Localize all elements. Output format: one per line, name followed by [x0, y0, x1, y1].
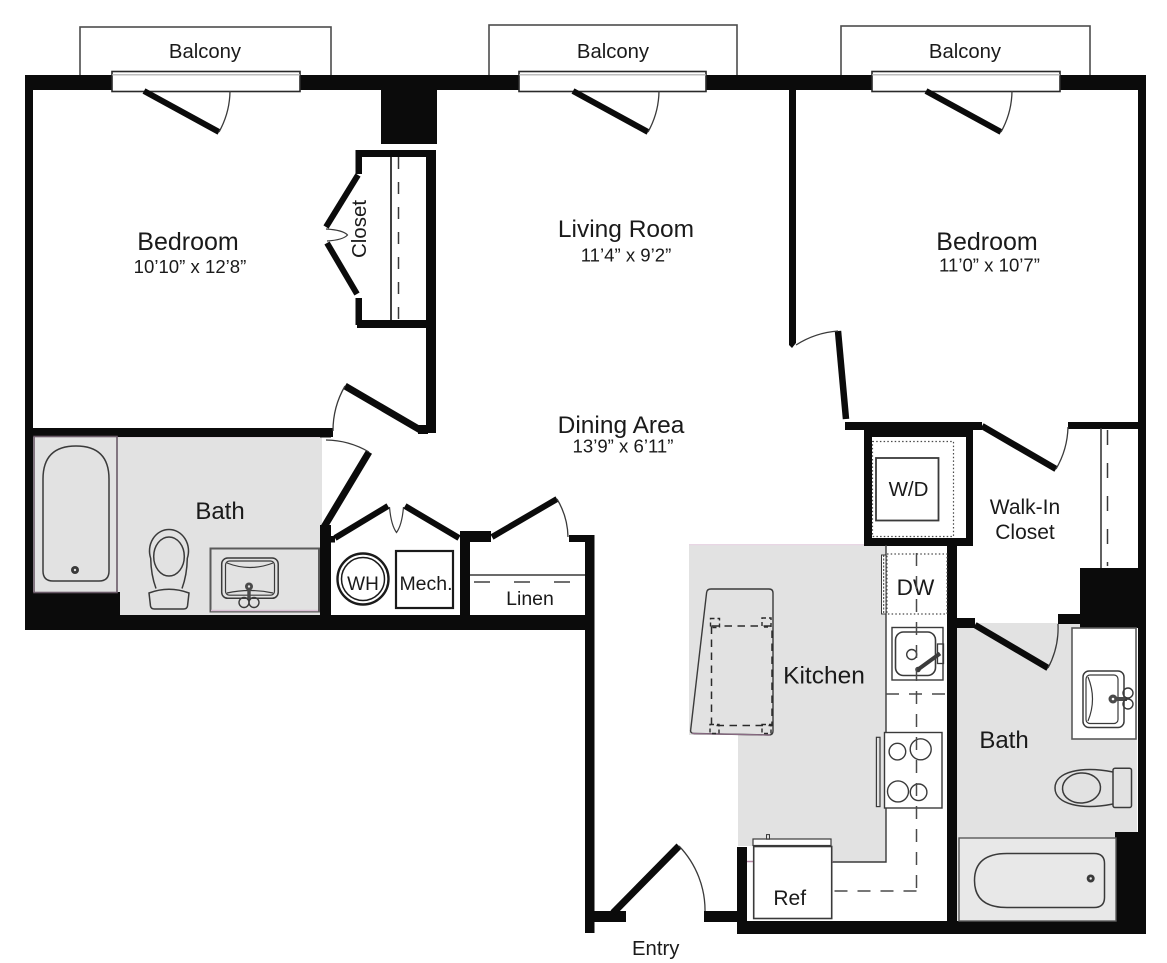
- svg-text:Balcony: Balcony: [929, 41, 1002, 63]
- svg-text:Kitchen: Kitchen: [783, 663, 865, 690]
- svg-text:Walk-In: Walk-In: [990, 496, 1060, 519]
- svg-text:Ref: Ref: [773, 887, 806, 910]
- svg-text:Closet: Closet: [995, 521, 1055, 544]
- svg-text:Closet: Closet: [348, 200, 371, 258]
- svg-text:Mech.: Mech.: [399, 573, 452, 595]
- svg-text:Bedroom: Bedroom: [137, 228, 238, 256]
- svg-text:11’0” x 10’7”: 11’0” x 10’7”: [939, 255, 1040, 276]
- svg-text:Linen: Linen: [506, 588, 554, 610]
- svg-text:Bedroom: Bedroom: [936, 228, 1037, 256]
- svg-text:Balcony: Balcony: [577, 41, 650, 63]
- svg-text:Living Room: Living Room: [558, 216, 694, 243]
- svg-text:11’4” x 9’2”: 11’4” x 9’2”: [581, 245, 672, 266]
- svg-text:10’10” x 12’8”: 10’10” x 12’8”: [134, 256, 247, 277]
- svg-text:Bath: Bath: [195, 498, 244, 525]
- svg-text:Entry: Entry: [632, 938, 680, 960]
- svg-text:Balcony: Balcony: [169, 41, 242, 63]
- svg-text:13’9” x 6’11”: 13’9” x 6’11”: [573, 436, 674, 457]
- svg-text:W/D: W/D: [889, 478, 929, 501]
- svg-text:WH: WH: [347, 574, 379, 595]
- svg-text:Bath: Bath: [979, 727, 1028, 754]
